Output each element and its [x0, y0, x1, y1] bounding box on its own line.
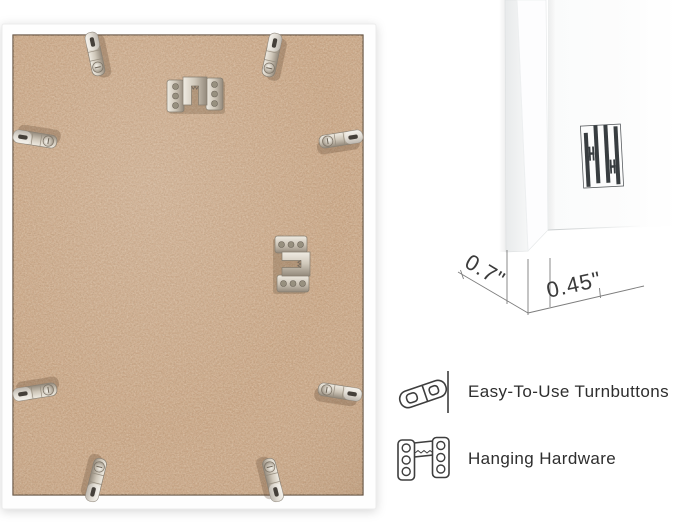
turnbutton-icon — [396, 368, 454, 416]
legend-label-hanging-hardware: Hanging Hardware — [468, 449, 616, 469]
legend-item-turnbuttons: Easy-To-Use Turnbuttons — [396, 368, 669, 416]
product-image-page: { "page": { "background": "#ffffff" }, "… — [0, 0, 679, 523]
hanging-hardware-top — [167, 77, 225, 114]
hanging-hardware-icon — [396, 434, 454, 484]
legend-item-hanging-hardware: Hanging Hardware — [396, 434, 616, 484]
hanging-hardware-side — [273, 236, 310, 294]
legend-label-turnbuttons: Easy-To-Use Turnbuttons — [468, 382, 669, 402]
frame-inner-area — [548, 0, 679, 230]
frame-back-view — [0, 0, 420, 523]
